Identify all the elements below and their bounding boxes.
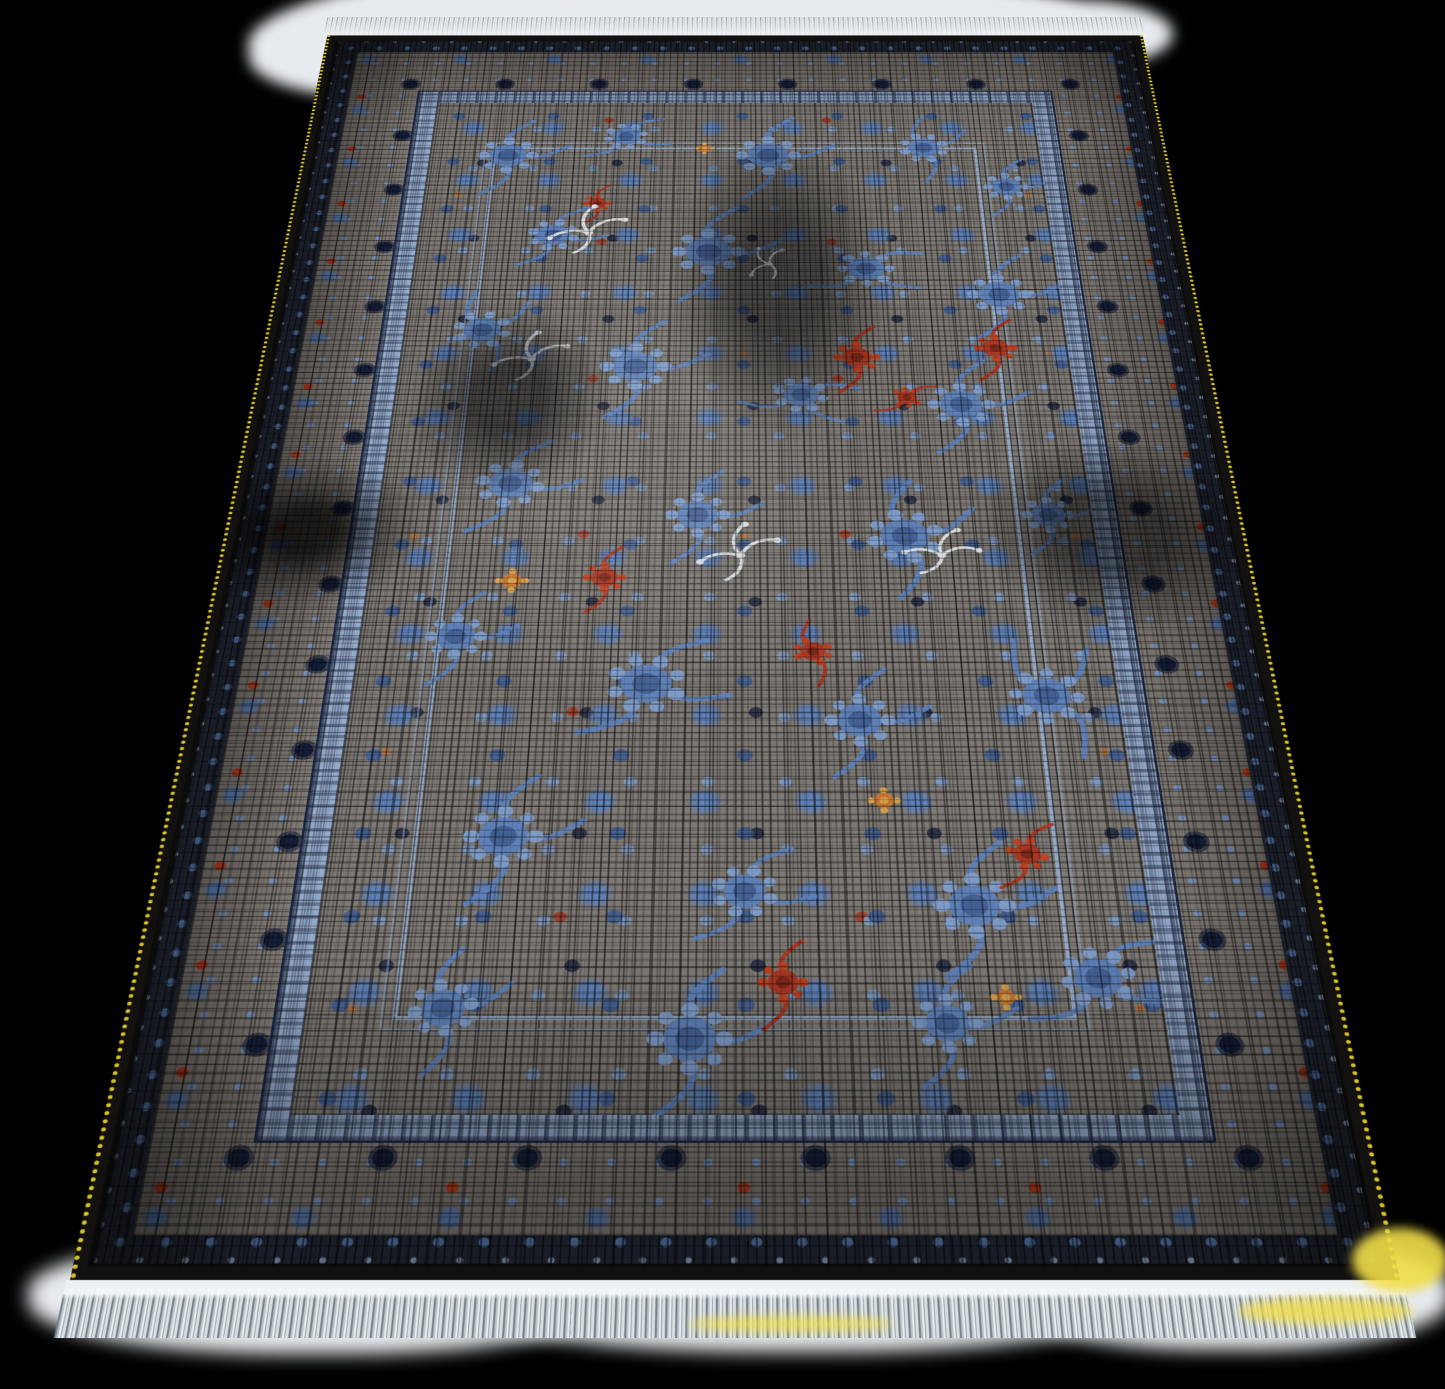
top-fringe	[323, 17, 1147, 37]
red-flowers	[523, 185, 1101, 1029]
floral-overlay	[290, 103, 1180, 1115]
rug	[70, 35, 1400, 1280]
rug-scene	[70, 0, 1400, 1280]
rug-photo	[0, 0, 1445, 1389]
blue-flowers	[319, 108, 1180, 1115]
sunlight-spot	[1238, 1298, 1413, 1324]
sunlight-spot	[1352, 1228, 1445, 1292]
sunlight-spot	[688, 1316, 893, 1332]
